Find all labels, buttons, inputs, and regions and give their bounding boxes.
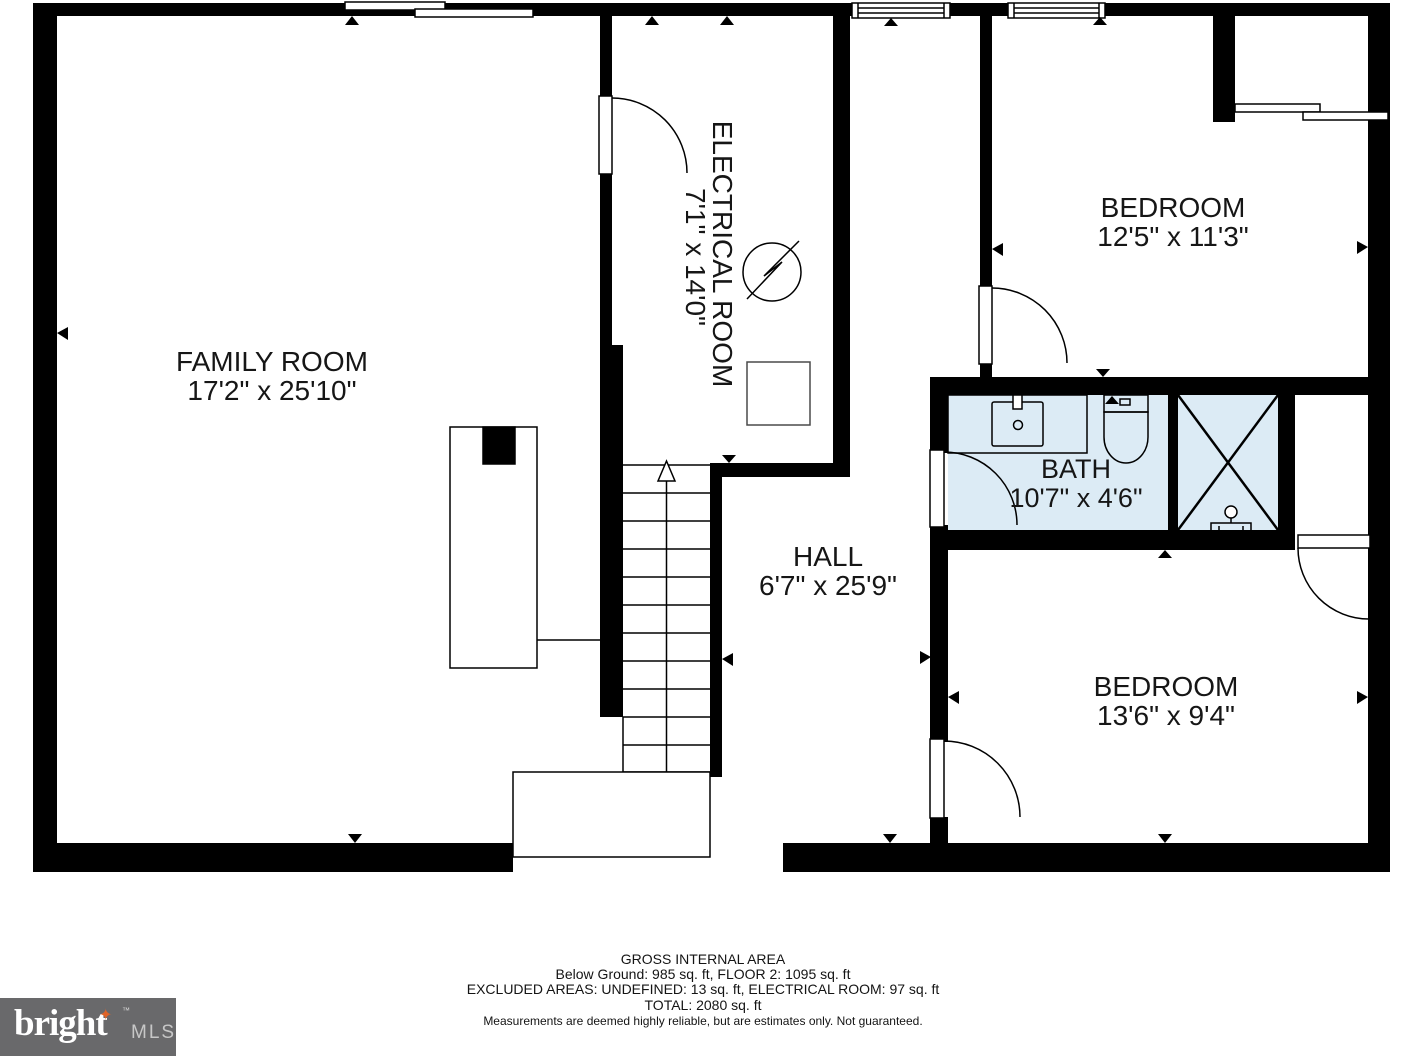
bedroom2-label: BEDROOM [1094, 671, 1239, 702]
bedroom2-door-icon [930, 739, 1020, 818]
total-area-line: TOTAL: 2080 sq. ft [0, 998, 1406, 1013]
electrical-symbol-icon [743, 241, 801, 301]
disclaimer-text: Measurements are deemed highly reliable,… [0, 1014, 1406, 1029]
bright-mls-logo: bright ✦ ™ MLS [0, 998, 176, 1056]
floor-plan-drawing: FAMILY ROOM 17'2" x 25'10" ELECTRICAL RO… [0, 0, 1406, 950]
stairs-up-arrow-icon [658, 461, 675, 481]
stair-landing [513, 772, 710, 857]
logo-trademark: ™ [122, 1006, 130, 1015]
excluded-areas-line: EXCLUDED AREAS: UNDEFINED: 13 sq. ft, EL… [0, 982, 1406, 997]
logo-suffix-text: MLS [131, 1022, 176, 1044]
floor-plan-page: FAMILY ROOM 17'2" x 25'10" ELECTRICAL RO… [0, 0, 1406, 1056]
hall-dims: 6'7" x 25'9" [759, 570, 897, 601]
area-summary: GROSS INTERNAL AREA Below Ground: 985 sq… [0, 952, 1406, 1029]
electrical-room-dims: 7'1" x 14'0" [680, 188, 711, 326]
electrical-room-door-icon [599, 96, 687, 174]
electrical-equipment-box [747, 362, 810, 425]
bath-dims: 10'7" x 4'6" [1009, 483, 1142, 513]
bedroom1-bay-window-icon [1235, 104, 1388, 120]
gross-internal-area-title: GROSS INTERNAL AREA [0, 952, 1406, 967]
bedroom2-dims: 13'6" x 9'4" [1097, 700, 1235, 731]
closet-door-icon [1298, 535, 1370, 619]
logo-star-icon: ✦ [99, 1005, 112, 1025]
bedroom1-top-window-icon [1008, 3, 1105, 18]
hall-window-icon [852, 3, 950, 18]
hall-label: HALL [793, 541, 863, 572]
logo-brand-text: bright [14, 1002, 107, 1045]
bedroom1-label: BEDROOM [1101, 192, 1246, 223]
bedroom1-dims: 12'5" x 11'3" [1097, 221, 1248, 252]
family-room-label: FAMILY ROOM [176, 346, 368, 377]
floor-areas-line: Below Ground: 985 sq. ft, FLOOR 2: 1095 … [0, 967, 1406, 982]
family-room-dims: 17'2" x 25'10" [187, 375, 356, 406]
bedroom1-door-icon [979, 286, 1067, 364]
bath-label: BATH [1041, 454, 1111, 484]
fireplace-structure [450, 427, 600, 668]
